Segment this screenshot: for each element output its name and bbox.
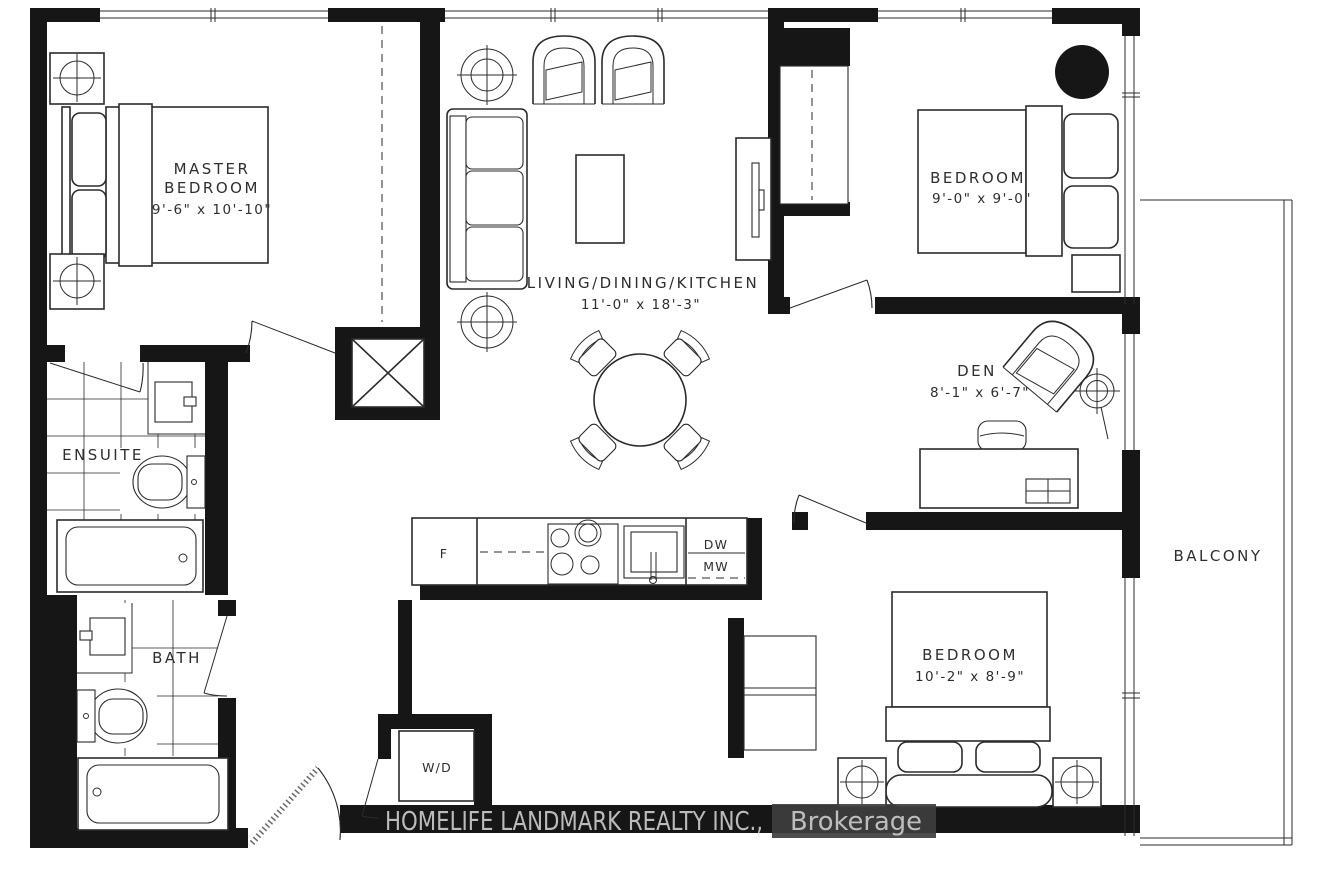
bedroom-lower: BEDROOM 10'-2" x 8'-9" [744,592,1101,807]
washer-dryer-label: W/D [422,760,452,775]
bathroom-sink [155,382,196,422]
watermark: HOMELIFE LANDMARK REALTY INC., Brokerage [385,804,936,838]
nightstand [1053,758,1101,807]
floorplan-canvas: BALCONY MASTER BEDROOM 9'- [0,0,1328,877]
side-table [1074,368,1120,439]
column [1055,45,1109,99]
bedroom-upper-dims: 9'-0" x 9'-0" [932,191,1032,207]
bed [886,592,1052,807]
nightstand [50,254,104,309]
balcony-label: BALCONY [1173,547,1262,565]
laundry-closet: W/D [399,731,474,801]
master-bedroom-label-line2: BEDROOM [164,179,260,197]
bedroom-lower-label: BEDROOM [922,646,1018,664]
entry-door [252,768,340,843]
living-label: LIVING/DINING/KITCHEN [527,274,759,292]
dishwasher-label: DW [704,537,728,552]
fridge-label: F [440,546,448,561]
master-bedroom: MASTER BEDROOM 9'-6" x 10'-10" [50,53,272,309]
bedroom-upper-door [790,280,872,308]
desk-chair [978,421,1026,451]
ensuite-label: ENSUITE [62,446,144,464]
armchair [533,36,595,104]
toilet [77,689,147,743]
den-dims: 8'-1" x 6'-7" [930,385,1030,401]
watermark-brokerage-name: HOMELIFE LANDMARK REALTY INC., [385,807,763,837]
bedroom-lower-dims: 10'-2" x 8'-9" [915,669,1025,685]
watermark-brokerage-suffix: Brokerage [790,807,922,837]
bath-door [204,616,227,696]
ensuite: ENSUITE [47,362,205,592]
master-bedroom-label-line1: MASTER [174,160,251,178]
sofa [447,109,527,289]
nightstand [1072,255,1120,292]
coffee-table [576,155,624,243]
elevator-shaft [352,339,424,407]
den: DEN 8'-1" x 6'-7" [920,310,1120,508]
den-label: DEN [957,362,997,380]
bedroom-upper: BEDROOM 9'-0" x 9'-0" [918,45,1120,292]
side-table-lamp [457,45,517,105]
master-door [246,321,335,353]
side-table-lamp [457,292,517,352]
balcony: BALCONY [1140,200,1292,845]
bathtub [57,520,203,592]
dining-table [568,328,713,473]
armchair [602,36,664,104]
floorplan-svg: BALCONY MASTER BEDROOM 9'- [0,0,1328,877]
kitchen-sink [624,526,684,584]
ensuite-door [50,363,143,392]
bathtub [78,758,228,830]
tv-console [736,138,771,260]
cooktop [548,520,618,584]
living-dims: 11'-0" x 18'-3" [581,297,701,313]
nightstand [50,53,104,104]
nightstand [838,758,886,807]
microwave-label: MW [703,559,729,574]
living-dining-kitchen: LIVING/DINING/KITCHEN 11'-0" x 18'-3" [447,36,771,472]
kitchen: F DW MW [412,518,747,585]
bath: BATH [77,600,228,830]
desk [920,421,1078,508]
master-bedroom-dims: 9'-6" x 10'-10" [152,202,272,218]
bath-label: BATH [152,649,202,667]
closet [744,636,816,750]
bedroom-upper-label: BEDROOM [930,169,1026,187]
